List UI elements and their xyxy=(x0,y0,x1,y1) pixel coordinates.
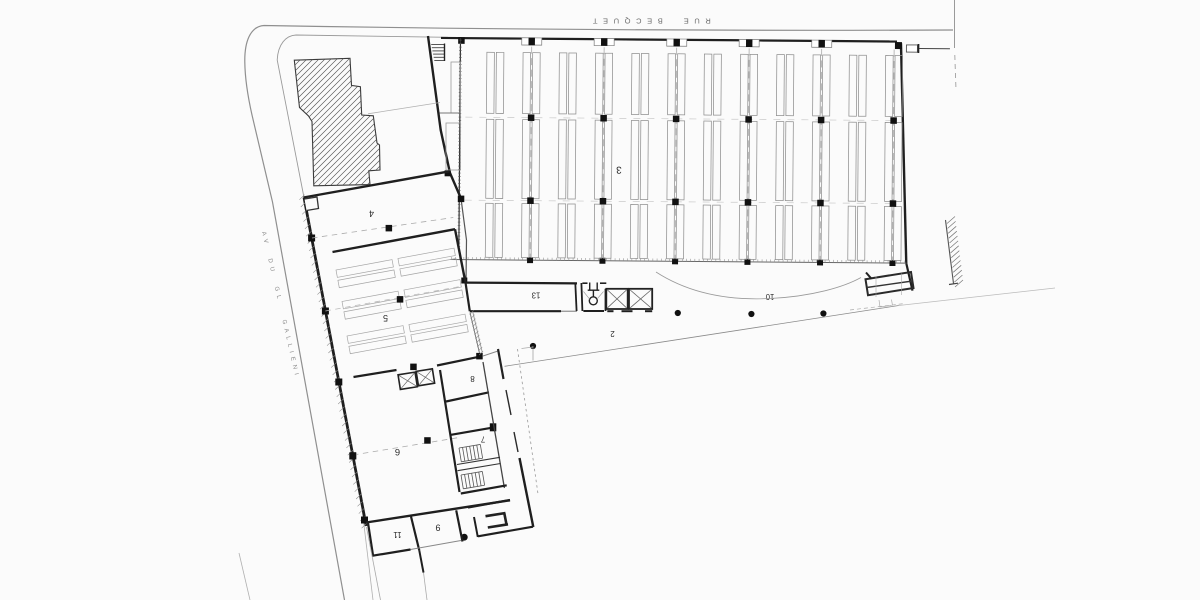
svg-text:11: 11 xyxy=(393,530,402,539)
svg-text:7: 7 xyxy=(480,435,485,444)
svg-text:RUE BECQUET: RUE BECQUET xyxy=(587,16,710,25)
svg-text:9: 9 xyxy=(435,522,440,532)
svg-text:4: 4 xyxy=(369,208,374,218)
svg-text:8: 8 xyxy=(470,374,475,383)
svg-text:13: 13 xyxy=(532,291,541,300)
svg-text:10: 10 xyxy=(765,292,774,301)
svg-text:2: 2 xyxy=(610,329,615,338)
svg-text:5: 5 xyxy=(383,313,388,323)
svg-text:3: 3 xyxy=(616,164,622,175)
